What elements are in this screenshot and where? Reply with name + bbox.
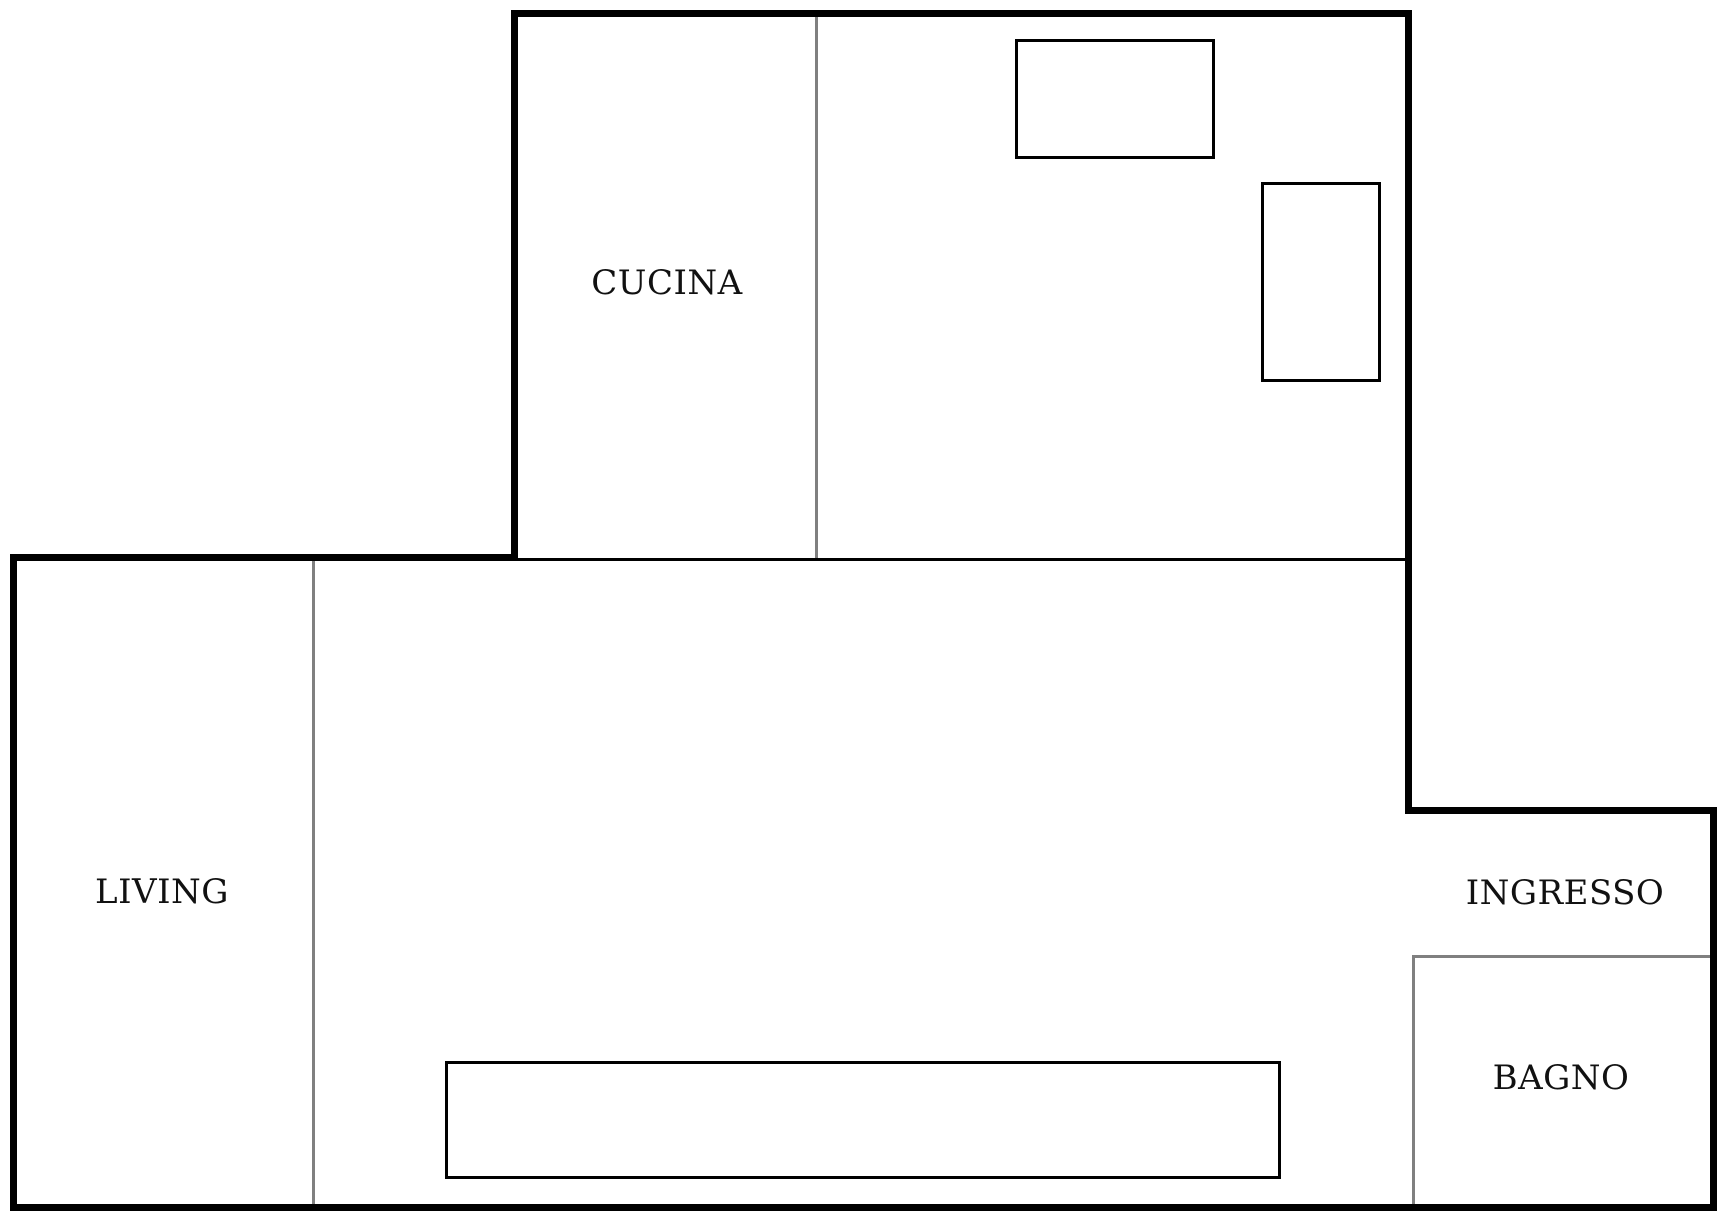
floor-plan: CUCINA LIVING INGRESSO BAGNO [0,0,1726,1220]
exterior-wall-kitchen-left [511,10,518,561]
exterior-wall-ingresso-top [1405,807,1717,814]
fixture-rect-top-room [1015,39,1215,159]
bagno-wall-top [1412,955,1710,958]
exterior-wall-right-upper [1405,10,1412,814]
fixture-rect-living-area [445,1061,1281,1179]
exterior-wall-left [10,554,17,1211]
cucina-divider-line [815,17,818,558]
ingresso-label: INGRESSO [1466,873,1665,913]
exterior-wall-right-lower [1710,807,1717,1211]
living-divider-line [312,561,315,1204]
room-boundary-line [518,558,1405,561]
bagno-wall-left [1412,955,1415,1204]
exterior-wall-lower-top [10,554,518,561]
exterior-wall-bottom [10,1204,1717,1211]
fixture-rect-right-room [1261,182,1381,382]
cucina-label: CUCINA [591,263,742,303]
exterior-wall-top [511,10,1412,17]
living-label: LIVING [95,872,229,912]
bagno-label: BAGNO [1493,1058,1630,1098]
